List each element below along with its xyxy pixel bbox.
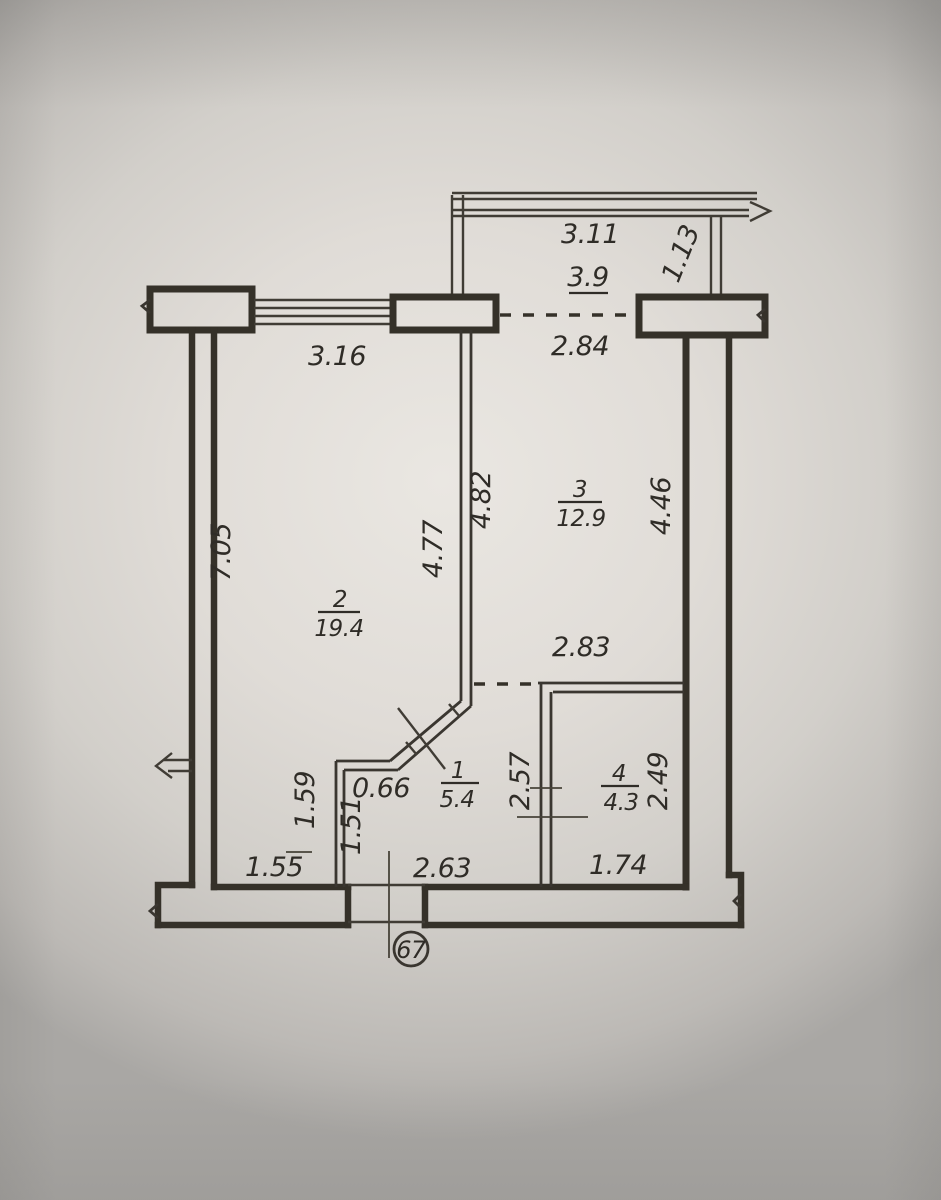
- dim-room3-bottom: 2.83: [552, 632, 610, 663]
- dim-partition-hall: 1.51: [336, 797, 367, 855]
- room3-area: 12.9: [556, 506, 605, 532]
- dim-left-wall: 7.05: [206, 523, 237, 581]
- balcony-rail-arrow-icon: [750, 202, 770, 221]
- dim-room3-right: 4.46: [646, 477, 677, 535]
- room3-number: 3: [573, 477, 587, 503]
- outer-walls: [142, 289, 765, 925]
- dim-room4-left: 2.57: [505, 752, 536, 810]
- dim-room2-right: 4.77: [418, 520, 449, 578]
- room2-area: 19.4: [314, 616, 363, 642]
- dim-balcony-depth: 1.13: [656, 221, 707, 287]
- dim-window-wall: 3.16: [308, 341, 366, 372]
- bottom-left-pier: [158, 885, 192, 925]
- dim-room4-right: 2.49: [643, 752, 674, 810]
- left-wall-mark: [156, 753, 192, 778]
- dim-balcony-opening: 2.84: [551, 331, 609, 362]
- dim-balcony-area: 3.9: [567, 262, 608, 293]
- window-sill-block: [393, 297, 496, 330]
- room4-area: 4.3: [603, 790, 638, 816]
- dim-partition-room2: 1.59: [290, 771, 321, 829]
- door-leaf-line: [398, 708, 445, 769]
- window: [254, 300, 392, 324]
- room4-number: 4: [612, 761, 626, 787]
- room1-number: 1: [451, 758, 465, 784]
- dim-room4-bottom: 1.74: [589, 850, 647, 881]
- room1-area: 5.4: [439, 787, 474, 813]
- dimension-labels: 3.11 3.9 1.13 3.16 2.84 2.83 0.66 1.55 2…: [206, 219, 706, 884]
- scanned-floor-plan-photo: 67 2 19.4 3 12.9 1 5.4 4 4.3 3.11 3.9 1.…: [0, 0, 941, 1200]
- dim-balcony-width: 3.11: [561, 219, 619, 250]
- dim-room2-bottom: 1.55: [245, 852, 303, 883]
- floor-plan-drawing: 67 2 19.4 3 12.9 1 5.4 4 4.3 3.11 3.9 1.…: [0, 0, 941, 1200]
- room2-number: 2: [333, 587, 347, 613]
- apartment-number: 67: [396, 936, 427, 964]
- bottom-wall: [150, 885, 741, 925]
- dim-hall-bottom: 2.63: [413, 853, 471, 884]
- dim-room3-left: 4.82: [466, 471, 497, 529]
